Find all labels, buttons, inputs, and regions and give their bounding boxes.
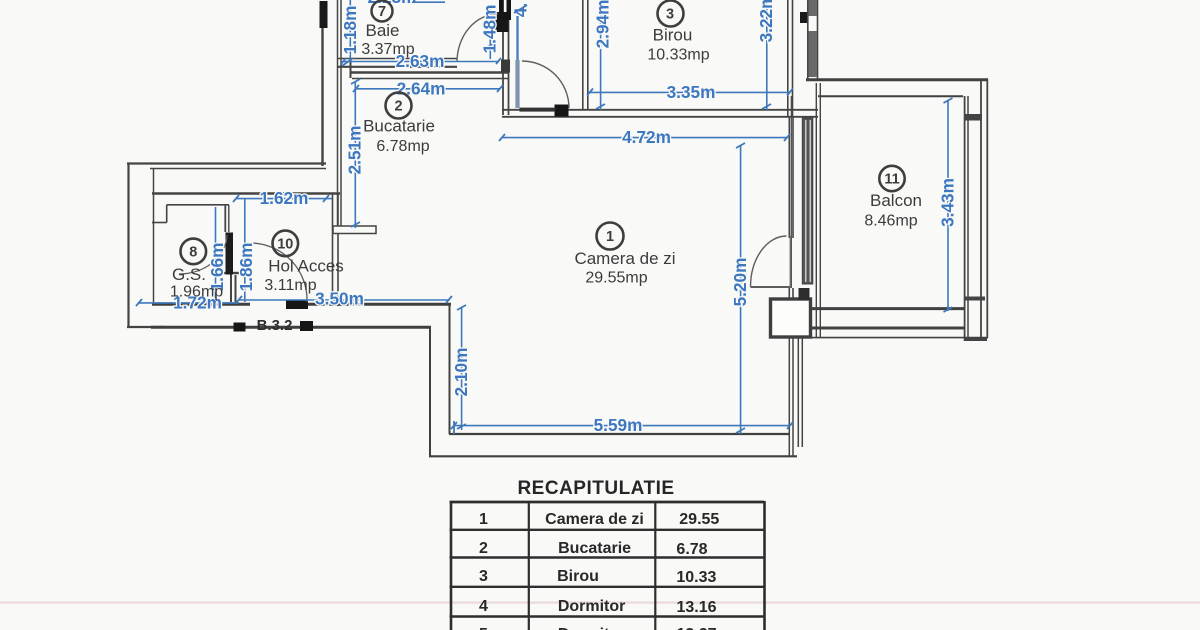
svg-text:1: 1 bbox=[606, 229, 614, 245]
svg-text:Camera de zi: Camera de zi bbox=[574, 249, 675, 268]
svg-text:RECAPITULATIE: RECAPITULATIE bbox=[517, 478, 674, 499]
svg-text:4.72m: 4.72m bbox=[622, 127, 671, 147]
svg-text:5: 5 bbox=[479, 626, 488, 630]
svg-text:Hol Acces: Hol Acces bbox=[268, 257, 344, 276]
svg-text:Camera de zi: Camera de zi bbox=[545, 511, 644, 528]
svg-text:Dormitor: Dormitor bbox=[558, 626, 626, 630]
svg-text:3.22m: 3.22m bbox=[756, 0, 776, 42]
svg-text:1.96mp: 1.96mp bbox=[170, 284, 223, 301]
svg-text:3.43m: 3.43m bbox=[937, 178, 957, 227]
svg-text:1: 1 bbox=[479, 511, 488, 528]
svg-text:B.3.2: B.3.2 bbox=[257, 317, 293, 334]
svg-text:5.59m: 5.59m bbox=[594, 415, 643, 435]
svg-text:8: 8 bbox=[189, 244, 197, 260]
svg-text:10.33: 10.33 bbox=[676, 569, 716, 586]
svg-text:1.86m: 1.86m bbox=[236, 243, 256, 292]
svg-text:Birou: Birou bbox=[557, 568, 599, 585]
svg-text:3.50m: 3.50m bbox=[315, 289, 364, 309]
svg-text:13.27: 13.27 bbox=[676, 626, 716, 630]
svg-text:6.78: 6.78 bbox=[676, 541, 707, 558]
svg-text:2.94m: 2.94m bbox=[593, 0, 613, 48]
svg-text:1.62m: 1.62m bbox=[260, 188, 309, 208]
svg-text:5.20m: 5.20m bbox=[730, 258, 750, 307]
svg-text:2.51m: 2.51m bbox=[345, 126, 365, 175]
svg-text:2: 2 bbox=[394, 99, 402, 115]
svg-text:Birou: Birou bbox=[653, 26, 693, 45]
svg-text:6.78mp: 6.78mp bbox=[376, 138, 429, 155]
svg-text:10.33mp: 10.33mp bbox=[647, 47, 709, 64]
svg-text:Bucatarie: Bucatarie bbox=[363, 117, 435, 136]
svg-text:Baie: Baie bbox=[365, 21, 399, 40]
svg-text:1.18m: 1.18m bbox=[340, 6, 360, 55]
svg-text:Bucatarie: Bucatarie bbox=[558, 540, 631, 557]
svg-text:Dormitor: Dormitor bbox=[558, 598, 626, 615]
svg-text:2.64m: 2.64m bbox=[397, 79, 446, 99]
svg-text:29.55: 29.55 bbox=[679, 511, 719, 528]
svg-text:1.48m: 1.48m bbox=[479, 5, 499, 54]
svg-text:3.35m: 3.35m bbox=[667, 82, 716, 102]
svg-text:7: 7 bbox=[378, 4, 386, 20]
svg-text:2.10m: 2.10m bbox=[451, 348, 471, 397]
svg-text:Balcon: Balcon bbox=[870, 191, 922, 210]
svg-text:G.S.: G.S. bbox=[172, 265, 206, 284]
svg-text:29.55mp: 29.55mp bbox=[585, 270, 647, 287]
svg-text:3.11mp: 3.11mp bbox=[264, 277, 316, 294]
svg-text:3: 3 bbox=[666, 7, 674, 23]
svg-text:8.46mp: 8.46mp bbox=[864, 213, 917, 230]
svg-text:3.37mp: 3.37mp bbox=[361, 41, 414, 58]
svg-text:4: 4 bbox=[479, 598, 488, 615]
svg-text:2: 2 bbox=[479, 540, 488, 557]
svg-text:13.16: 13.16 bbox=[676, 599, 716, 616]
svg-text:11: 11 bbox=[884, 172, 899, 188]
svg-text:10: 10 bbox=[277, 236, 293, 252]
svg-text:3: 3 bbox=[479, 568, 488, 585]
